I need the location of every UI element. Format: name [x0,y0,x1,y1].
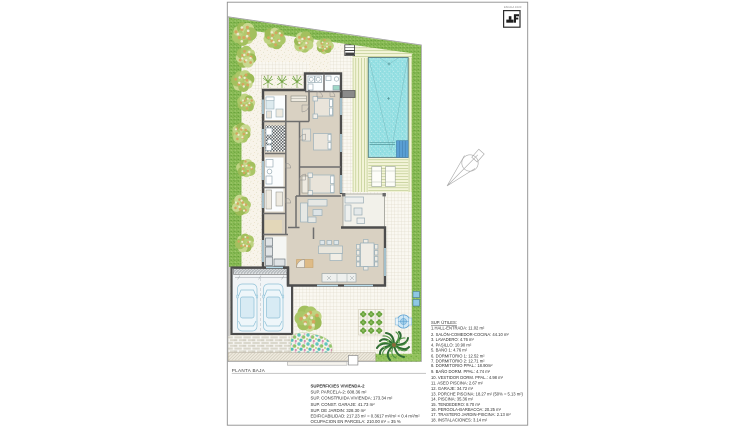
svg-text:EDIFICABILIDAD: 217.23 m² = 0: EDIFICABILIDAD: 217.23 m² = 0.3617 m²/m²… [311,414,421,419]
svg-text:1.HALL-ENTRADA: 11.02 m²: 1.HALL-ENTRADA: 11.02 m² [431,326,485,331]
svg-text:3. LAVADERO: 4.76 m²: 3. LAVADERO: 4.76 m² [431,337,474,342]
svg-text:10. VESTIDOR DORM. PPAL.: 4.98: 10. VESTIDOR DORM. PPAL.: 4.98 m² [431,375,504,380]
svg-text:SUP. ÚTILES:: SUP. ÚTILES: [431,320,457,325]
svg-text:12. GARAJE: 34.72 m²: 12. GARAJE: 34.72 m² [431,386,474,391]
svg-text:SUP. PARCELA-2: 608.36 m²: SUP. PARCELA-2: 608.36 m² [311,389,368,394]
svg-text:14. PISCINA: 35.36 m²: 14. PISCINA: 35.36 m² [431,397,474,402]
svg-text:9. BAÑO DORM. PPAL: 4.74 m²: 9. BAÑO DORM. PPAL: 4.74 m² [431,369,491,374]
svg-text:11. ASEO PISCINA: 2.67 m²: 11. ASEO PISCINA: 2.67 m² [431,380,484,385]
svg-text:18. INSTALACIONES: 3.14 m²: 18. INSTALACIONES: 3.14 m² [431,417,488,422]
svg-text:8. DORMITORIO PPAL.: 18.90m²: 8. DORMITORIO PPAL.: 18.90m² [431,363,493,368]
svg-text:PLANTA BAJA: PLANTA BAJA [232,368,266,373]
svg-text:SUP. CONST. GARAJE: 41.73 m²: SUP. CONST. GARAJE: 41.73 m² [311,402,376,407]
svg-text:SUP. DE JARDIN: 328.30 m²: SUP. DE JARDIN: 328.30 m² [311,408,367,413]
svg-text:SUPERFICIES VIVIENDA-2: SUPERFICIES VIVIENDA-2 [311,384,366,389]
svg-text:OCUPACION EN PARCELA: 210.00 m: OCUPACION EN PARCELA: 210.00 m² = 35 % [311,419,401,424]
svg-text:16. PERGOLA-BARBACOA: 20.25 m²: 16. PERGOLA-BARBACOA: 20.25 m² [431,407,502,412]
svg-text:SUP. CONSTRUIDA VIVIENDA: 173.: SUP. CONSTRUIDA VIVIENDA: 173.34 m² [311,396,393,401]
svg-text:ESCALA 1/100: ESCALA 1/100 [504,5,522,9]
svg-text:5. BAÑO 1: 4.76 m²: 5. BAÑO 1: 4.76 m² [431,348,468,353]
